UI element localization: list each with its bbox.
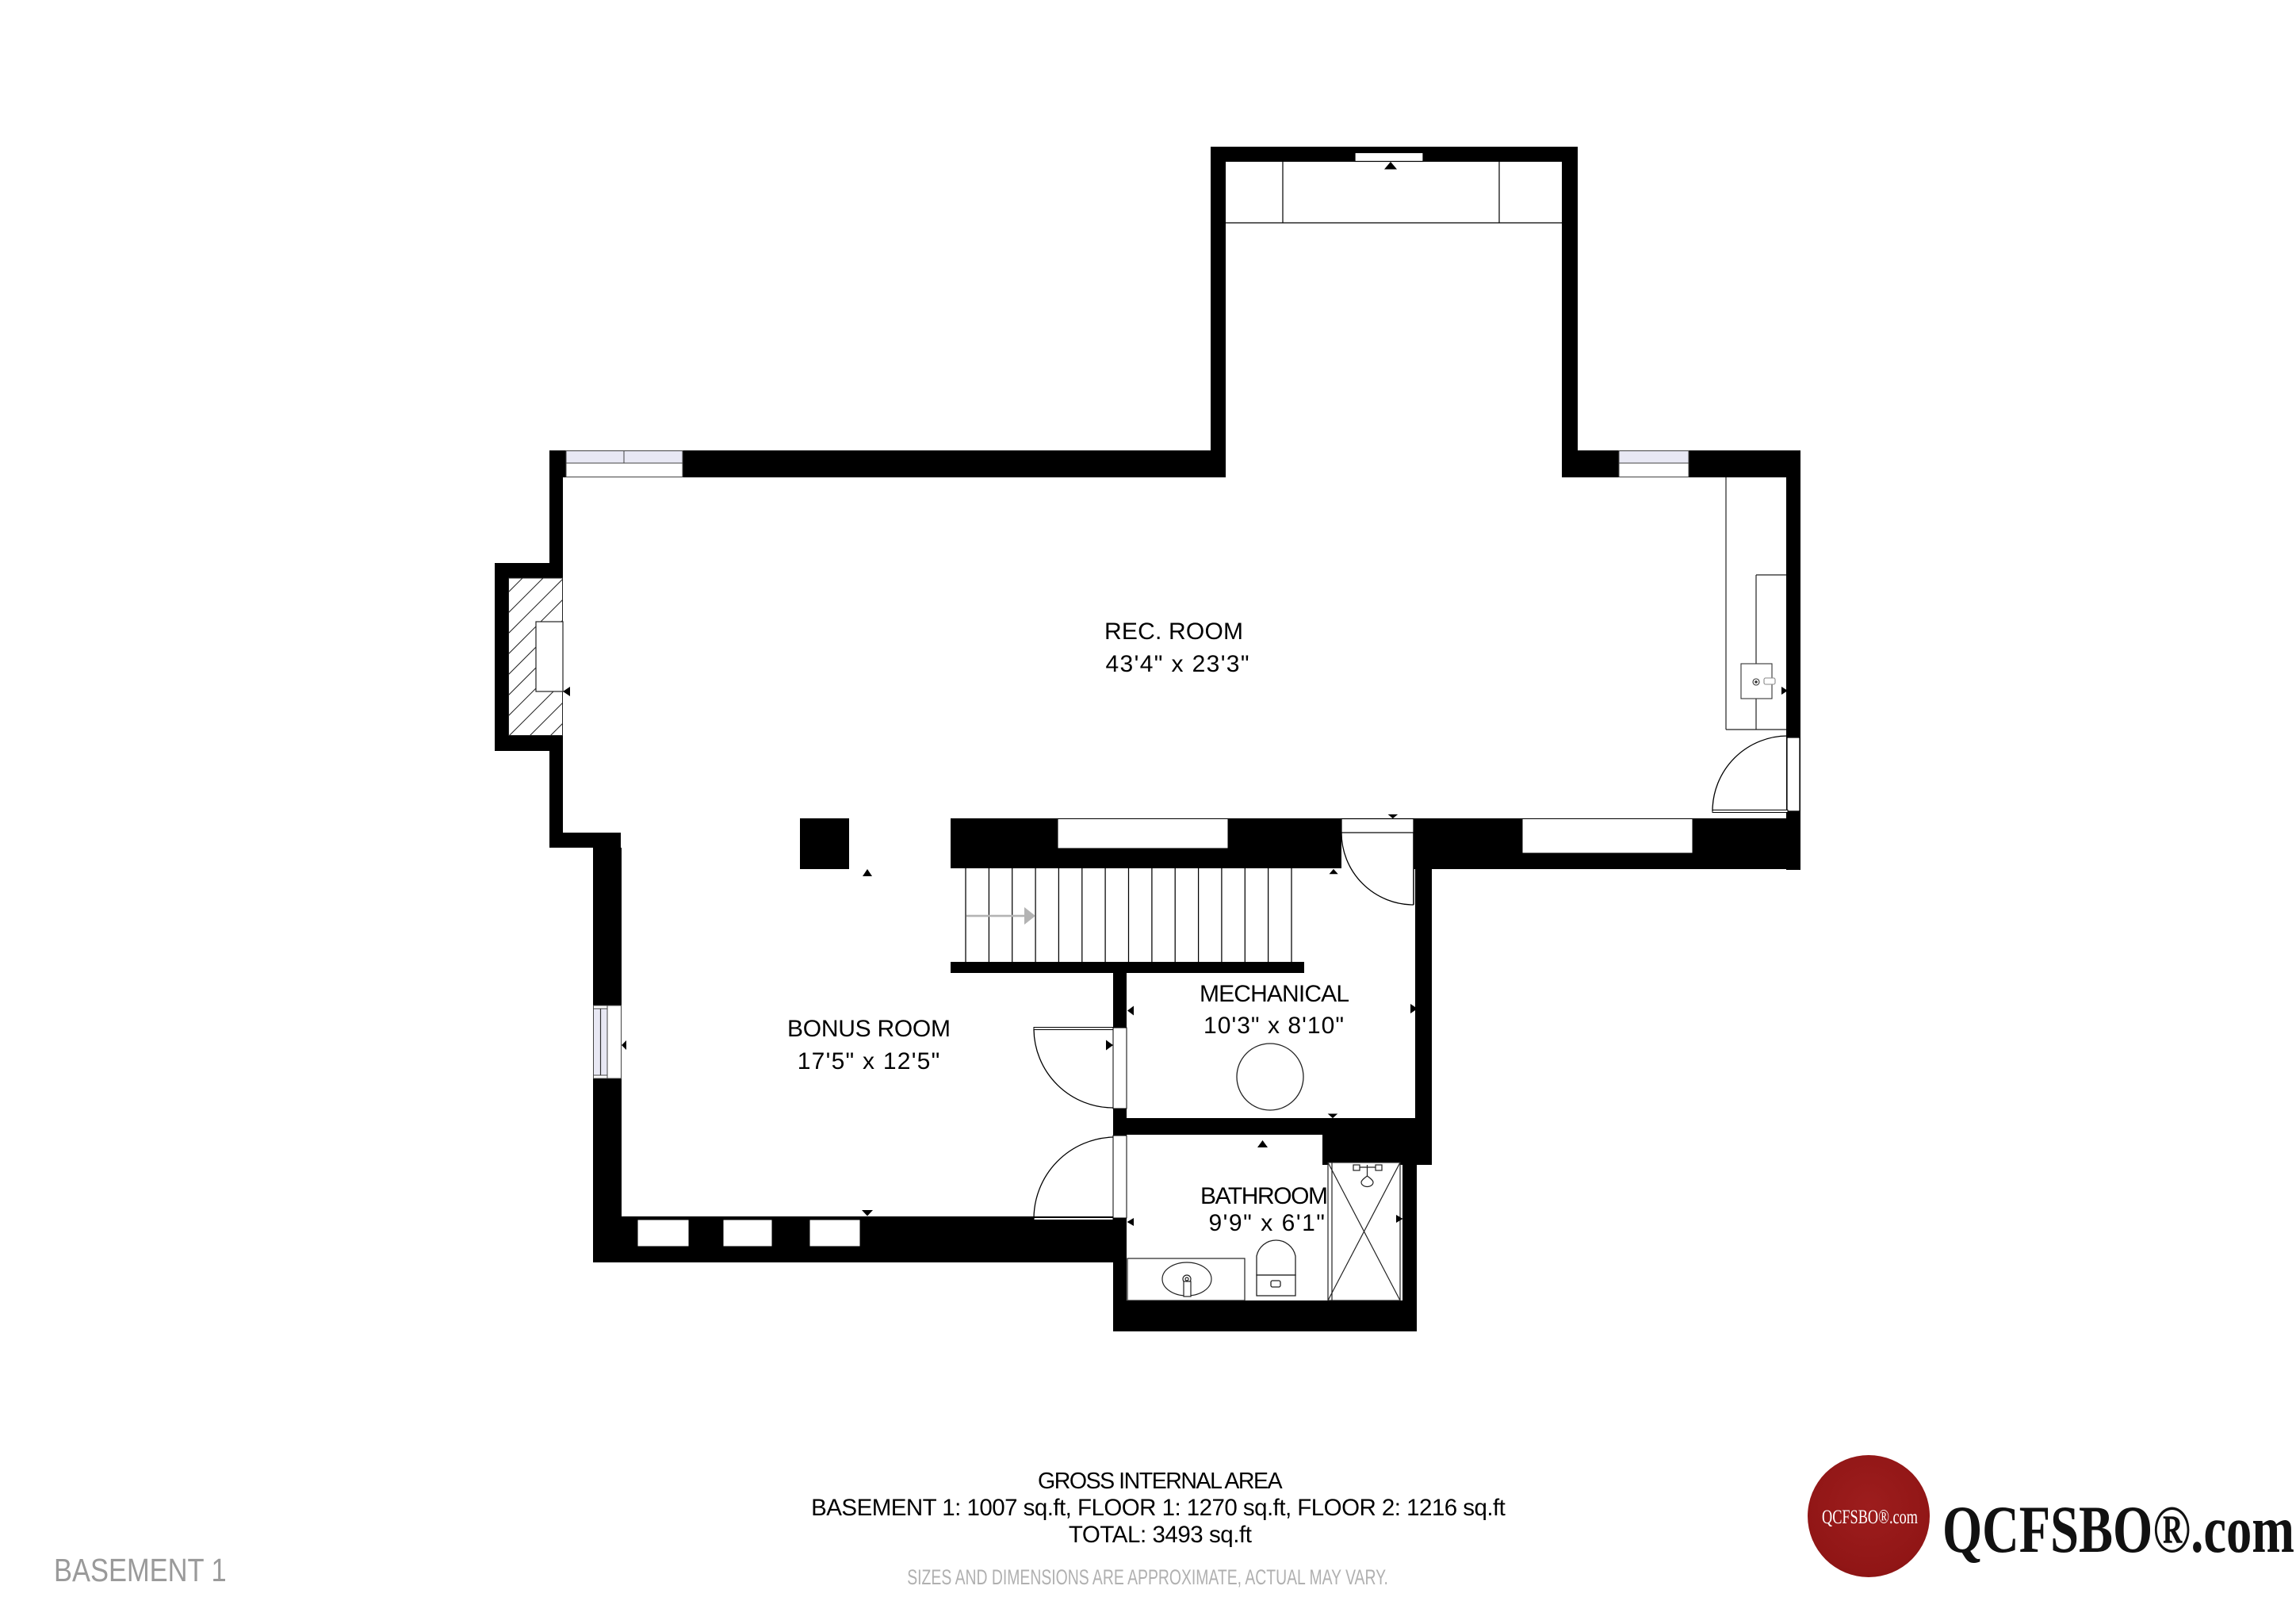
svg-text:9'9" x 6'1": 9'9" x 6'1" xyxy=(1208,1210,1325,1236)
svg-text:QCFSBO®.com: QCFSBO®.com xyxy=(1822,1507,1918,1528)
svg-text:QCFSBO®.com: QCFSBO®.com xyxy=(1942,1492,2294,1567)
svg-text:SIZES AND DIMENSIONS ARE APPRO: SIZES AND DIMENSIONS ARE APPROXIMATE, AC… xyxy=(907,1565,1388,1589)
svg-text:BASEMENT 1: BASEMENT 1 xyxy=(54,1552,227,1588)
svg-text:REC. ROOM: REC. ROOM xyxy=(1104,619,1243,645)
svg-text:TOTAL: 3493 sq.ft: TOTAL: 3493 sq.ft xyxy=(1069,1522,1252,1548)
svg-text:10'3" x 8'10": 10'3" x 8'10" xyxy=(1203,1013,1344,1039)
svg-text:17'5" x 12'5": 17'5" x 12'5" xyxy=(798,1048,940,1074)
svg-text:43'4" x 23'3": 43'4" x 23'3" xyxy=(1106,651,1249,677)
svg-text:GROSS INTERNAL AREA: GROSS INTERNAL AREA xyxy=(1038,1469,1283,1494)
svg-text:BASEMENT 1: 1007 sq.ft, FLOOR: BASEMENT 1: 1007 sq.ft, FLOOR 1: 1270 sq… xyxy=(811,1495,1506,1521)
svg-text:BONUS ROOM: BONUS ROOM xyxy=(787,1016,951,1042)
svg-text:BATHROOM: BATHROOM xyxy=(1200,1183,1328,1209)
svg-text:MECHANICAL: MECHANICAL xyxy=(1200,981,1349,1007)
